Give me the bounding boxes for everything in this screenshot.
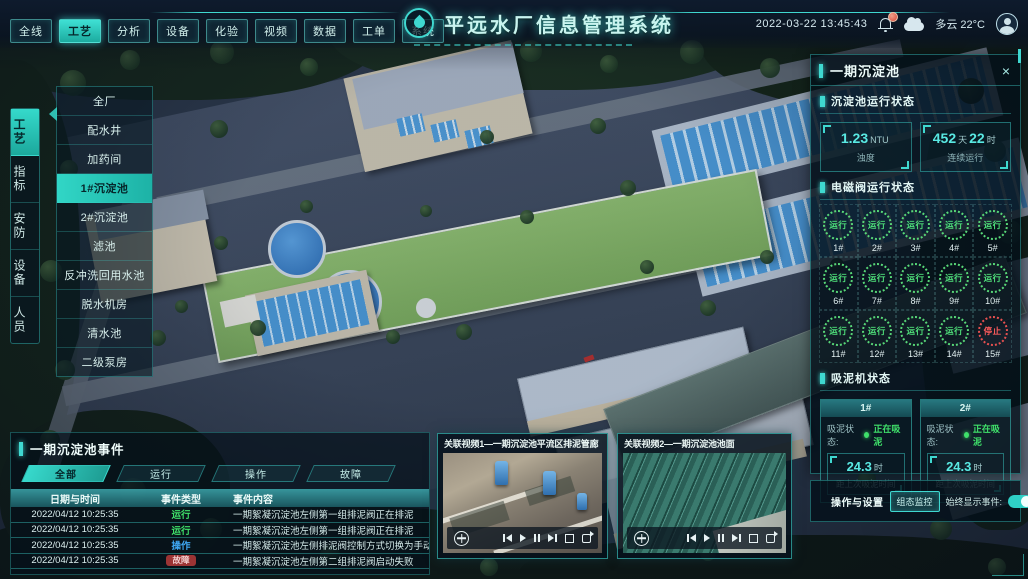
camera-dpad-icon[interactable] [454,531,469,546]
valve-8#: 运行8# [896,257,935,310]
fullscreen-icon[interactable] [565,534,574,543]
mud-time-unit: 时 [874,463,883,473]
area-menu: 全厂配水井加药间1#沉淀池2#沉淀池滤池反冲洗回用水池脱水机房清水池二级泵房 [56,86,153,377]
video-1-title: 关联视频1—一期沉淀池平流区排泥管廊 [438,434,607,453]
skip-forward-icon[interactable] [548,534,558,542]
valve-state: 运行 [945,219,963,231]
valve-14#: 运行14# [935,310,974,363]
valve-ring-icon: 运行 [823,210,853,240]
operations-panel: 操作与设置 组态监控 始终显示事件: [810,480,1021,522]
loop-icon[interactable] [766,534,775,543]
area-menu-item-5[interactable]: 滤池 [57,232,152,261]
valve-ring-icon: 运行 [862,210,892,240]
video-transport-controls [687,534,776,543]
event-col-0: 日期与时间 [11,489,139,507]
top-menu-item-6[interactable]: 数据 [304,19,346,43]
mud-status-line: 吸泥状态:正在吸泥 [921,417,1011,448]
title-bullet [19,442,23,456]
close-icon[interactable]: × [1000,64,1012,78]
valve-3#: 运行3# [896,204,935,257]
top-menu-item-1[interactable]: 工艺 [59,19,101,43]
valve-label: 8# [897,296,934,306]
user-avatar[interactable] [996,13,1018,35]
panel-title: 一期沉淀池 [830,61,1000,80]
top-menu: 全线工艺分析设备化验视频数据工单系统 [10,19,444,43]
panel-corner-accent [1018,49,1021,63]
datetime: 2022-03-22 13:45:43 [756,18,868,30]
valve-1#: 运行1# [819,204,858,257]
valve-state: 停止 [984,325,1002,337]
turbidity-unit: NTU [870,135,889,145]
uptime-hours: 22 [969,130,985,146]
uptime-hours-unit: 时 [987,135,996,145]
uptime-days-unit: 天 [958,135,967,145]
event-panel: 一期沉淀池事件 全部运行操作故障 日期与时间事件类型事件内容 2022/04/1… [10,432,430,575]
valve-label: 9# [936,296,973,306]
top-menu-item-7[interactable]: 工单 [353,19,395,43]
video-panel-2: 关联视频2—一期沉淀池池面 [617,433,792,559]
fault-badge: 故障 [166,555,195,566]
event-time: 2022/04/12 10:25:35 [11,509,139,520]
area-menu-item-7[interactable]: 脱水机房 [57,290,152,319]
status-dot-icon [964,432,969,438]
event-tabs: 全部运行操作故障 [25,465,429,482]
scada-monitor-button[interactable]: 组态监控 [890,491,940,512]
side-tab-4[interactable]: 人员 [11,297,39,343]
valve-state: 运行 [984,219,1002,231]
top-bar-right: 2022-03-22 13:45:43 多云 22°C [756,13,1018,35]
app-screen: 全线工艺分析设备化验视频数据工单系统 平远水厂信息管理系统 2022-03-22… [0,0,1028,579]
header-deco-line [150,12,400,13]
mud-status-value: 正在吸泥 [873,422,904,448]
valve-7#: 运行7# [858,257,897,310]
pool-status-panel: 一期沉淀池 × 沉淀池运行状态 1.23NTU 浊度 452天22时 连续运行 … [810,54,1021,474]
mud-status-label: 吸泥状态: [927,422,960,448]
section-title-pool-status: 沉淀池运行状态 [831,93,915,109]
event-tab-label: 运行 [150,466,172,481]
valve-11#: 运行11# [819,310,858,363]
valve-state: 运行 [868,272,886,284]
top-menu-item-4[interactable]: 化验 [206,19,248,43]
cloud-weather-icon [904,22,924,31]
valve-label: 15# [974,349,1011,359]
valve-state: 运行 [829,325,847,337]
valve-13#: 运行13# [896,310,935,363]
event-table-body: 2022/04/12 10:25:35运行一期絮凝沉淀池左侧第一组排泥阀正在排泥… [11,507,429,569]
mud-machine-id: 2# [921,400,1011,417]
area-menu-item-2[interactable]: 加药间 [57,145,152,174]
camera-dpad-icon[interactable] [634,531,649,546]
turbidity-card: 1.23NTU 浊度 [820,122,912,172]
pause-icon[interactable] [718,534,724,542]
top-menu-item-5[interactable]: 视频 [255,19,297,43]
valve-label: 1# [820,243,857,253]
valve-5#: 运行5# [973,204,1012,257]
brand: 平远水厂信息管理系统 [404,8,674,38]
uptime-card: 452天22时 连续运行 [920,122,1012,172]
top-bar: 全线工艺分析设备化验视频数据工单系统 平远水厂信息管理系统 2022-03-22… [0,0,1028,48]
loop-icon[interactable] [582,534,591,543]
valve-ring-icon: 运行 [823,263,853,293]
status-dot-icon [864,432,869,438]
side-tab-1[interactable]: 指标 [11,156,39,203]
valve-label: 10# [974,296,1011,306]
top-menu-item-3[interactable]: 设备 [157,19,199,43]
valve-state: 运行 [906,325,924,337]
mud-time-line: 24.3时 [928,458,1004,476]
event-row-0: 2022/04/12 10:25:35运行一期絮凝沉淀池左侧第一组排泥阀正在排泥 [11,507,429,523]
turbidity-label: 浊度 [857,151,875,164]
event-row-2: 2022/04/12 10:25:35操作一期絮凝沉淀池左侧排泥阀控制方式切换为… [11,538,429,554]
event-table-header: 日期与时间事件类型事件内容 [11,489,429,507]
area-menu-item-3[interactable]: 1#沉淀池 [57,174,152,203]
valve-ring-icon: 运行 [900,210,930,240]
valve-2#: 运行2# [858,204,897,257]
corner-deco-lines [992,554,1024,576]
valve-state: 运行 [945,272,963,284]
valve-12#: 运行12# [858,310,897,363]
area-menu-item-1[interactable]: 配水井 [57,116,152,145]
event-type: 运行 [139,523,223,537]
uptime-label: 连续运行 [947,151,983,164]
event-tab-3[interactable]: 故障 [306,465,396,482]
valve-label: 2# [859,243,896,253]
valve-label: 6# [820,296,857,306]
valve-label: 13# [897,349,934,359]
fullscreen-icon[interactable] [749,534,758,543]
skip-back-icon[interactable] [503,534,513,542]
valve-ring-icon: 运行 [900,316,930,346]
valve-ring-icon: 运行 [978,263,1008,293]
event-tab-label: 故障 [340,466,362,481]
valve-15#: 停止15# [973,310,1012,363]
event-type: 运行 [139,507,223,521]
event-content: 一期絮凝沉淀池左侧排泥阀控制方式切换为手动 [223,538,429,552]
event-tab-label: 全部 [55,466,77,481]
event-tab-1[interactable]: 运行 [116,465,206,482]
valve-label: 11# [820,349,857,359]
app-title: 平远水厂信息管理系统 [444,9,674,38]
valve-10#: 运行10# [973,257,1012,310]
always-show-events-toggle[interactable] [1008,495,1028,508]
side-tab-2[interactable]: 安防 [11,203,39,250]
valve-4#: 运行4# [935,204,974,257]
valve-grid: 运行1#运行2#运行3#运行4#运行5#运行6#运行7#运行8#运行9#运行10… [819,204,1012,363]
mud-time-unit: 时 [973,463,982,473]
event-type: 故障 [139,555,223,566]
play-icon[interactable] [704,534,710,542]
mud-status-line: 吸泥状态:正在吸泥 [821,417,911,448]
mud-time-value: 24.3 [946,459,971,474]
event-content: 一期絮凝沉淀池左侧第一组排泥阀正在排泥 [223,523,429,537]
skip-back-icon[interactable] [687,534,697,542]
valve-ring-icon: 运行 [939,210,969,240]
event-col-2: 事件内容 [223,489,429,507]
uptime-days: 452 [933,130,956,146]
valve-ring-icon: 运行 [823,316,853,346]
valve-label: 14# [936,349,973,359]
weather-text: 多云 22°C [935,16,985,32]
event-tab-label: 操作 [245,466,267,481]
valve-label: 12# [859,349,896,359]
event-col-1: 事件类型 [139,489,223,507]
section-bullet [820,182,825,193]
valve-label: 4# [936,243,973,253]
notification-bell-icon[interactable] [878,17,893,32]
side-tab-0[interactable]: 工艺 [11,109,39,156]
top-menu-item-2[interactable]: 分析 [108,19,150,43]
area-menu-item-8[interactable]: 清水池 [57,319,152,348]
area-menu-item-0[interactable]: 全厂 [57,87,152,116]
mud-machine-id: 1# [821,400,911,417]
event-content: 一期絮凝沉淀池左侧第二组排泥阀启动失败 [223,554,429,568]
valve-ring-icon: 停止 [978,316,1008,346]
valve-state: 运行 [829,272,847,284]
valve-label: 5# [974,243,1011,253]
ops-title: 操作与设置 [831,494,884,509]
event-panel-title: 一期沉淀池事件 [30,439,421,458]
video-panel-1: 关联视频1—一期沉淀池平流区排泥管廊 [437,433,608,559]
event-time: 2022/04/12 10:25:35 [11,555,139,566]
video-2-controls [627,527,782,549]
video-transport-controls [503,534,592,543]
mud-status-value: 正在吸泥 [973,422,1004,448]
event-content: 一期絮凝沉淀池左侧第一组排泥阀正在排泥 [223,507,429,521]
valve-ring-icon: 运行 [978,210,1008,240]
side-tab-3[interactable]: 设备 [11,250,39,297]
mud-time-value: 24.3 [847,459,872,474]
water-logo-icon [404,8,434,38]
valve-state: 运行 [906,219,924,231]
valve-state: 运行 [829,219,847,231]
valve-ring-icon: 运行 [862,263,892,293]
valve-state: 运行 [906,272,924,284]
area-menu-item-4[interactable]: 2#沉淀池 [57,203,152,232]
valve-state: 运行 [868,219,886,231]
mud-status-label: 吸泥状态: [827,422,860,448]
title-underline-deco [414,44,632,46]
event-type: 操作 [139,538,223,552]
valve-ring-icon: 运行 [939,316,969,346]
valve-ring-icon: 运行 [862,316,892,346]
mud-time-line: 24.3时 [828,458,904,476]
valve-label: 7# [859,296,896,306]
section-title-valves: 电磁阀运行状态 [831,179,915,195]
pause-icon[interactable] [534,534,540,542]
top-menu-item-0[interactable]: 全线 [10,19,52,43]
skip-forward-icon[interactable] [732,534,742,542]
valve-ring-icon: 运行 [900,263,930,293]
play-icon[interactable] [520,534,526,542]
event-row-1: 2022/04/12 10:25:35运行一期絮凝沉淀池左侧第一组排泥阀正在排泥 [11,523,429,539]
valve-label: 3# [897,243,934,253]
valve-state: 运行 [984,272,1002,284]
video-2-title: 关联视频2—一期沉淀池池面 [618,434,791,453]
event-tab-0[interactable]: 全部 [21,465,111,482]
event-time: 2022/04/12 10:25:35 [11,540,139,551]
video-1-controls [447,527,598,549]
section-title-mud: 吸泥机状态 [831,370,891,386]
event-tab-2[interactable]: 操作 [211,465,301,482]
event-time: 2022/04/12 10:25:35 [11,524,139,535]
valve-6#: 运行6# [819,257,858,310]
area-menu-item-9[interactable]: 二级泵房 [57,348,152,376]
valve-state: 运行 [945,325,963,337]
left-tab-strip: 工艺指标安防设备人员 [10,108,40,344]
section-bullet [820,373,825,384]
area-menu-item-6[interactable]: 反冲洗回用水池 [57,261,152,290]
section-bullet [820,96,825,107]
valve-state: 运行 [868,325,886,337]
valve-ring-icon: 运行 [939,263,969,293]
title-bullet [819,64,823,78]
turbidity-value: 1.23 [841,130,868,146]
event-row-3: 2022/04/12 10:25:35故障一期絮凝沉淀池左侧第二组排泥阀启动失败 [11,554,429,570]
alert-badge [888,12,898,22]
valve-9#: 运行9# [935,257,974,310]
always-show-events-label: 始终显示事件: [946,495,1003,508]
